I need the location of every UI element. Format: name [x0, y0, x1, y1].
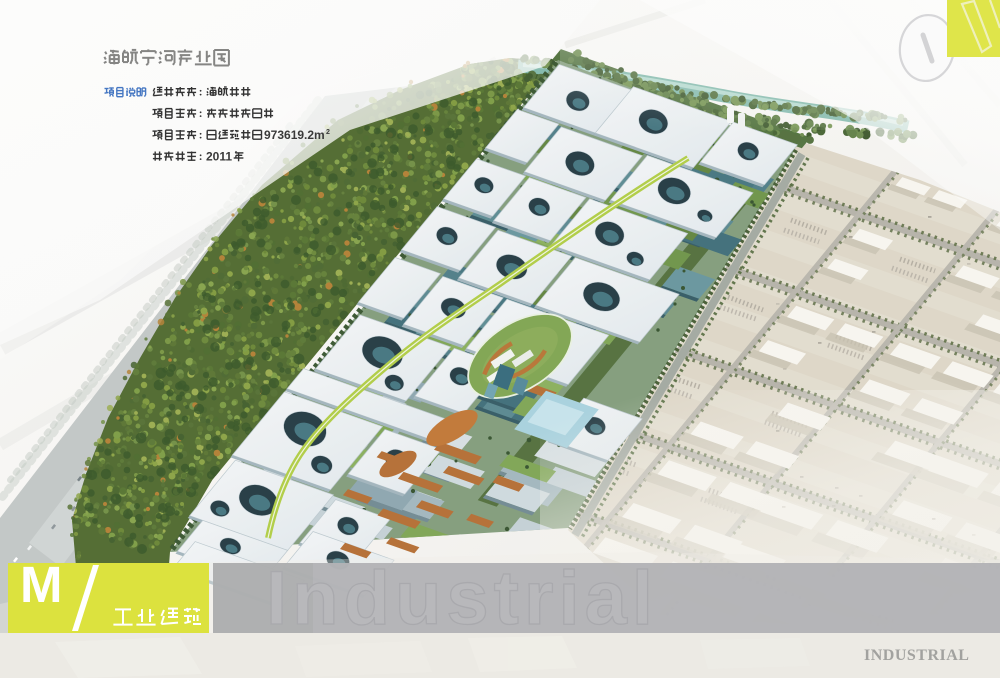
svg-text:Industrial: Industrial: [266, 556, 658, 641]
svg-text:M: M: [20, 556, 62, 613]
svg-text:2: 2: [326, 129, 330, 136]
svg-text:INDUSTRIAL: INDUSTRIAL: [864, 647, 969, 664]
svg-text:2011: 2011: [206, 150, 232, 164]
svg-text:973619.2m: 973619.2m: [264, 128, 325, 142]
